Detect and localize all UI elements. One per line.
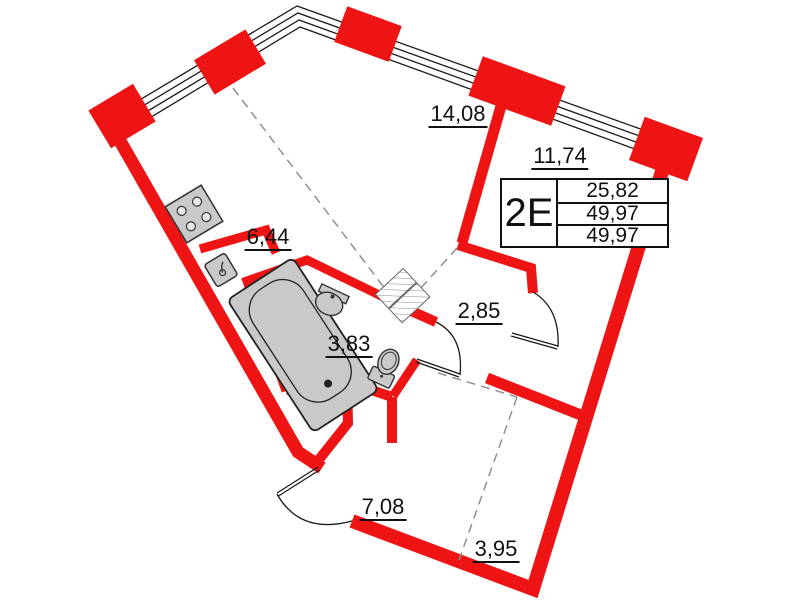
- facade-piers: [88, 6, 703, 181]
- area-label-bathroom: 3,83: [326, 333, 373, 358]
- room-door-arc: [533, 292, 558, 347]
- pier-apex-right: [334, 6, 401, 62]
- unit-total-area: 49,97: [558, 224, 667, 246]
- kitchen-sink: [204, 253, 238, 288]
- room-door-leaf: [511, 336, 557, 349]
- area-label-bedroom: 11,74: [531, 145, 588, 170]
- entrance-door-arc: [277, 494, 352, 525]
- area-label-alcove: 3,95: [473, 538, 520, 563]
- hallway-top-wall: [458, 245, 533, 293]
- unit-info-table: 2Е 25,82 49,97 49,97: [500, 178, 669, 248]
- entrance-door-leaf: [277, 467, 318, 493]
- entrance-door-leaf: [279, 470, 320, 496]
- unit-type-label: 2Е: [502, 180, 558, 246]
- floorplan-canvas: 14,08 11,74 6,44 2,85 3,83 7,08 3,95 2Е …: [0, 0, 800, 600]
- area-label-kitchen: 6,44: [245, 226, 292, 251]
- bathroom-door-leaf: [417, 359, 460, 374]
- unit-area: 49,97: [558, 202, 667, 224]
- hallway-bottom-wall: [487, 378, 586, 417]
- area-label-living: 14,08: [428, 103, 487, 128]
- bathroom-door-leaf: [416, 362, 459, 377]
- area-label-hall: 7,08: [360, 496, 407, 521]
- room-door-leaf: [512, 333, 558, 346]
- unit-living-area: 25,82: [558, 180, 667, 202]
- area-label-hallway: 2,85: [456, 300, 503, 325]
